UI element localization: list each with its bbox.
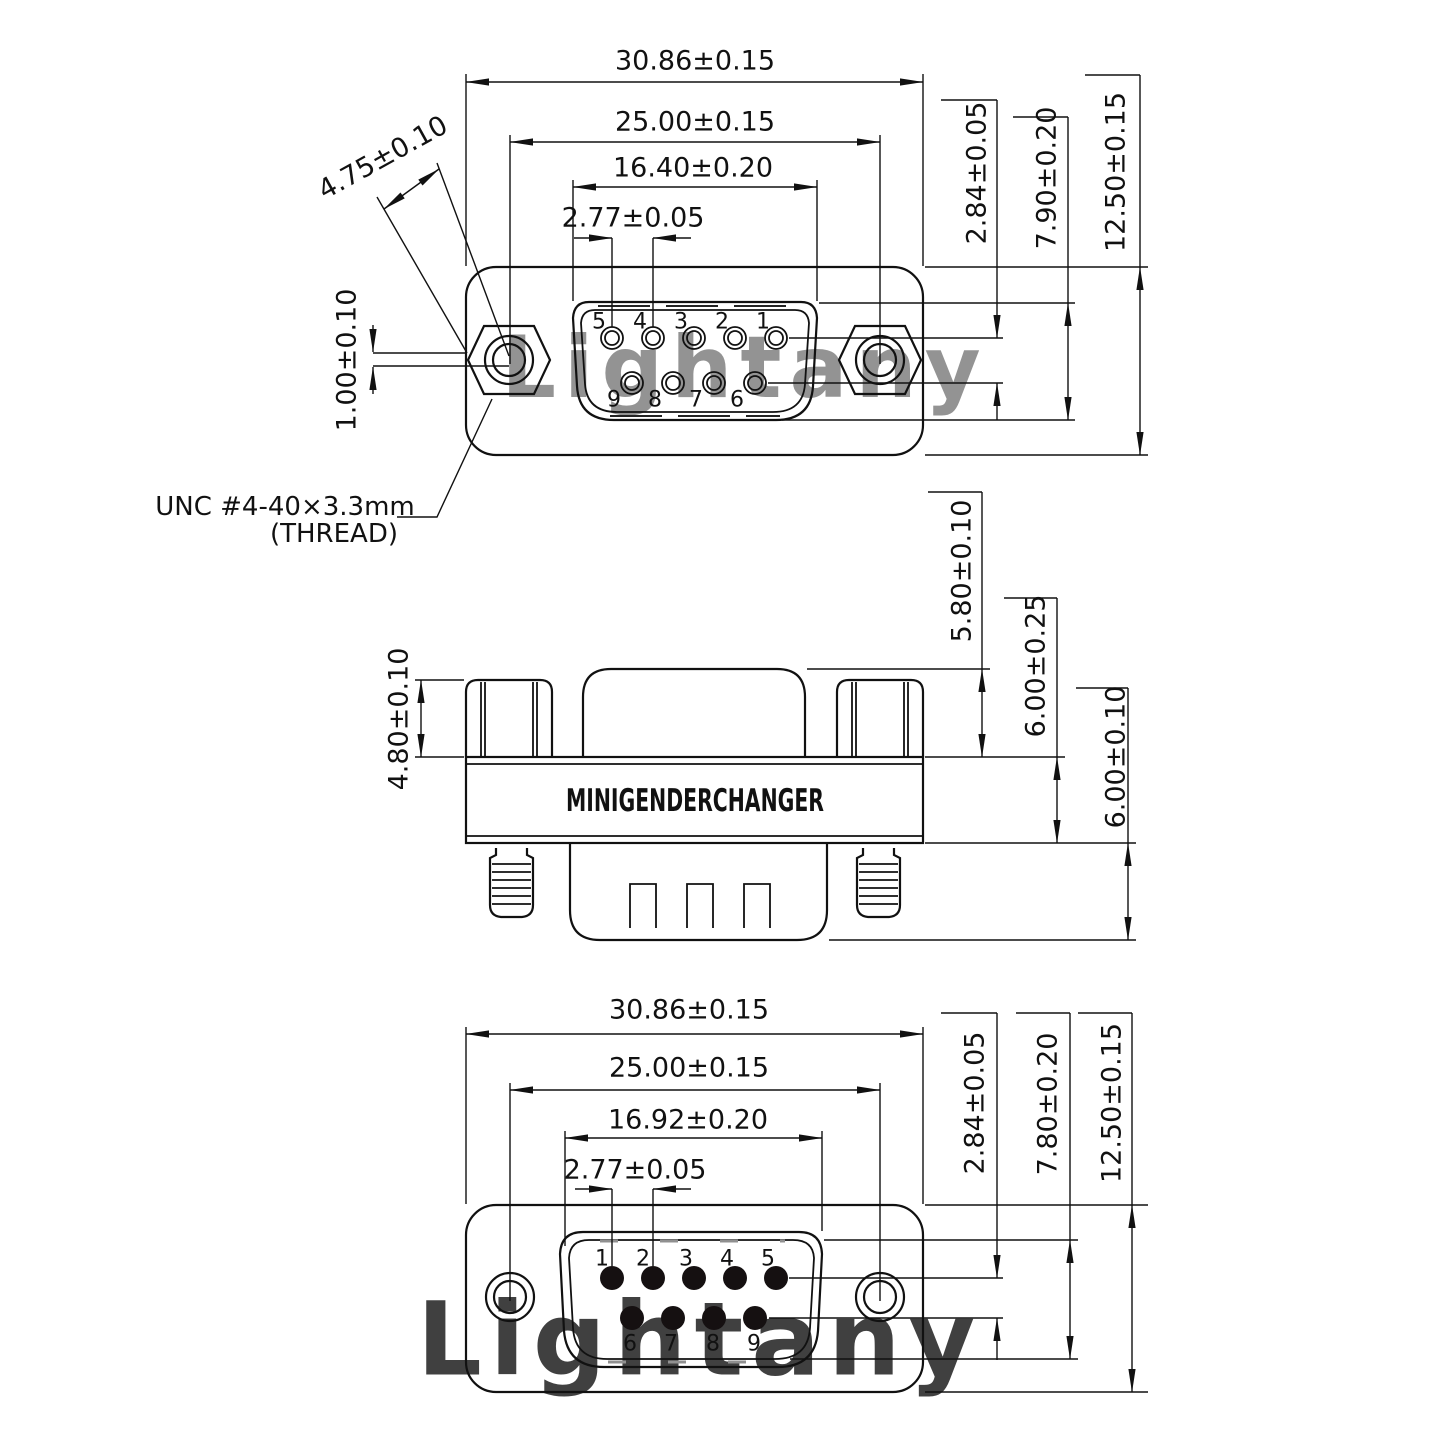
dim-label: 4.75±0.10 [313, 110, 453, 206]
dim-label: 1.00±0.10 [332, 289, 363, 432]
pin-number: 1 [756, 310, 770, 335]
pin-number: 4 [633, 310, 647, 335]
pin-number: 7 [664, 1332, 678, 1357]
pin-number: 6 [623, 1332, 637, 1357]
pin-slot [687, 884, 713, 928]
dim-label: 30.86±0.15 [609, 995, 769, 1026]
thread-note-line1: UNC #4-40×3.3mm [155, 492, 414, 522]
dim-label: 12.50±0.15 [1101, 92, 1132, 252]
pin-number: 9 [607, 388, 621, 413]
pin [743, 1306, 767, 1330]
pin [702, 1306, 726, 1330]
dim-label: 30.86±0.15 [615, 46, 775, 77]
standoff-right [837, 680, 923, 757]
pin-number: 8 [648, 388, 662, 413]
pin-number: 2 [636, 1247, 650, 1272]
dim-label: 25.00±0.15 [615, 107, 775, 138]
pin-number: 6 [730, 388, 744, 413]
thread-note: UNC #4-40×3.3mm (THREAD) [155, 399, 492, 549]
pin-number: 2 [715, 310, 729, 335]
pin [620, 1306, 644, 1330]
dim-label: 4.80±0.10 [384, 648, 415, 791]
top-view-female-face: 5 4 3 2 1 9 8 7 6 30.86±0.15 25.00±0.15 … [155, 46, 1148, 550]
dim-label: 2.84±0.05 [960, 1032, 991, 1175]
side-view: MINIGENDERCHANGER [384, 492, 1137, 940]
dim-label: 6.00±0.25 [1021, 595, 1052, 738]
db9-gender-changer-drawing: Lightany Lightany [0, 0, 1440, 1440]
pin-number: 9 [747, 1332, 761, 1357]
dim-label: 2.77±0.05 [562, 203, 705, 234]
pin [661, 1306, 685, 1330]
pin-number: 8 [706, 1332, 720, 1357]
pin-slot [630, 884, 656, 928]
dim-label: 12.50±0.15 [1097, 1023, 1128, 1183]
male-shell-side [570, 843, 827, 940]
dim-standoff-height: 4.80±0.10 [384, 648, 465, 791]
watermark-bottom: Lightany [417, 1281, 983, 1400]
jack-screw-right [857, 848, 900, 917]
dim-label: 2.77±0.05 [564, 1155, 707, 1186]
dim-pin-pitch: 2.77±0.05 [562, 203, 705, 328]
dim-label: 16.40±0.20 [613, 153, 773, 184]
pin-number: 5 [761, 1247, 775, 1272]
dim-label: 7.80±0.20 [1033, 1033, 1064, 1176]
pin-number: 4 [720, 1247, 734, 1272]
pin-number: 1 [595, 1247, 609, 1272]
dim-label: 5.80±0.10 [947, 500, 978, 643]
jack-screw-left [490, 848, 533, 917]
female-hood [583, 669, 805, 757]
dim-label: 16.92±0.20 [608, 1105, 768, 1136]
standoff-left [466, 680, 552, 757]
pin-number: 3 [674, 310, 688, 335]
dim-hole-offset: 1.00±0.10 [332, 289, 510, 432]
technical-drawing-page: Lightany Lightany [0, 0, 1440, 1440]
dim-label: 25.00±0.15 [609, 1053, 769, 1084]
product-label: MINIGENDERCHANGER [566, 783, 824, 819]
dim-label: 2.84±0.05 [962, 102, 993, 245]
pin-number: 3 [679, 1247, 693, 1272]
pin-number: 7 [689, 388, 703, 413]
thread-note-line2: (THREAD) [270, 519, 398, 549]
pin-number: 5 [592, 310, 606, 335]
dim-label: 6.00±0.10 [1101, 686, 1132, 829]
dim-label: 7.90±0.20 [1032, 107, 1063, 250]
pin-slot [744, 884, 770, 928]
